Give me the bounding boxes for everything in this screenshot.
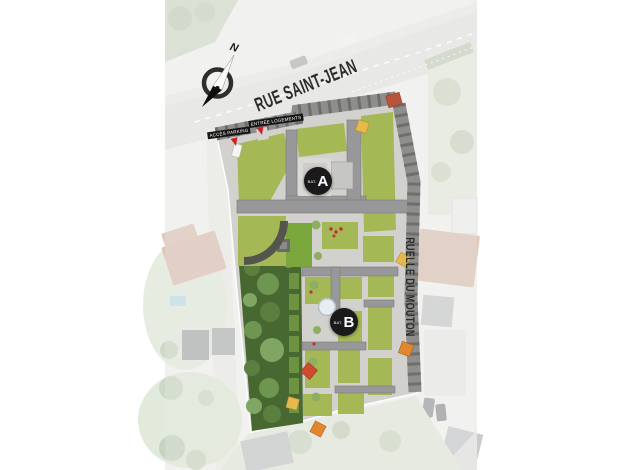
building-marker-b-prefix: BAT.: [334, 320, 343, 325]
furniture-dot: [329, 227, 332, 230]
building-roof: [302, 267, 398, 276]
hedge: [289, 336, 299, 352]
tree: [259, 378, 279, 398]
furniture-dot: [333, 235, 336, 238]
tree: [244, 321, 262, 339]
green-roof: [296, 123, 347, 157]
building-roof: [302, 342, 366, 350]
furniture-dot: [334, 230, 337, 233]
building-marker-a-prefix: BAT.: [308, 179, 317, 184]
hedge: [289, 273, 299, 289]
tree: [312, 393, 321, 402]
hedge: [289, 315, 299, 331]
building-roof: [331, 162, 353, 189]
tree: [263, 405, 281, 423]
street-label-ruelle-du-mouton: RUELLE DU MOUTON: [402, 237, 415, 337]
building-roof: [237, 200, 415, 213]
hedge: [289, 378, 299, 394]
building-marker-b[interactable]: BAT. B: [330, 308, 358, 336]
tree: [314, 252, 322, 260]
tree: [260, 338, 284, 362]
green-roof: [363, 236, 394, 262]
green-roof: [338, 277, 362, 299]
tree: [246, 398, 262, 414]
tree: [244, 360, 260, 376]
building-roof: [335, 386, 395, 393]
parasol-icon: [286, 397, 299, 410]
green-roof: [338, 350, 360, 383]
building-marker-a-letter: A: [318, 174, 329, 189]
development-site: [216, 92, 417, 437]
compass-pivot: [216, 86, 220, 90]
furniture-dot: [312, 342, 315, 345]
site-plan-page: N RUE SAINT-JEAN RUELLE DU MOUTON ACCÈS …: [0, 0, 640, 470]
hedge: [289, 357, 299, 373]
green-roof: [368, 304, 392, 350]
tree: [310, 281, 319, 290]
building-marker-b-letter: B: [344, 315, 355, 330]
tree: [312, 221, 321, 230]
green-roof: [338, 391, 364, 414]
furniture-dot: [339, 227, 342, 230]
building-roof: [364, 300, 394, 307]
furniture-dot: [309, 290, 312, 293]
tree: [257, 273, 279, 295]
hedge: [289, 294, 299, 310]
tree: [313, 326, 321, 334]
building-marker-a[interactable]: BAT. A: [304, 167, 332, 195]
hedge-column: [289, 273, 299, 413]
tree: [243, 293, 257, 307]
tree: [260, 302, 280, 322]
green-roof: [322, 222, 358, 249]
